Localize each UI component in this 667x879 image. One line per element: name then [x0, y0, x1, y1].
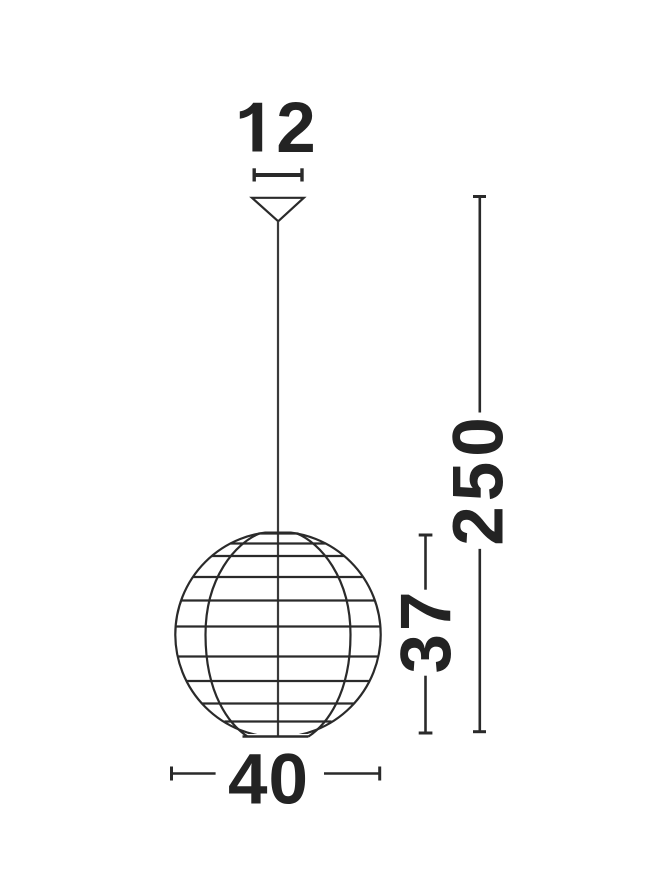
svg-text:250: 250	[440, 412, 519, 545]
svg-text:37: 37	[387, 589, 466, 674]
svg-text:40: 40	[228, 741, 309, 820]
svg-text:2: 2	[276, 89, 316, 168]
